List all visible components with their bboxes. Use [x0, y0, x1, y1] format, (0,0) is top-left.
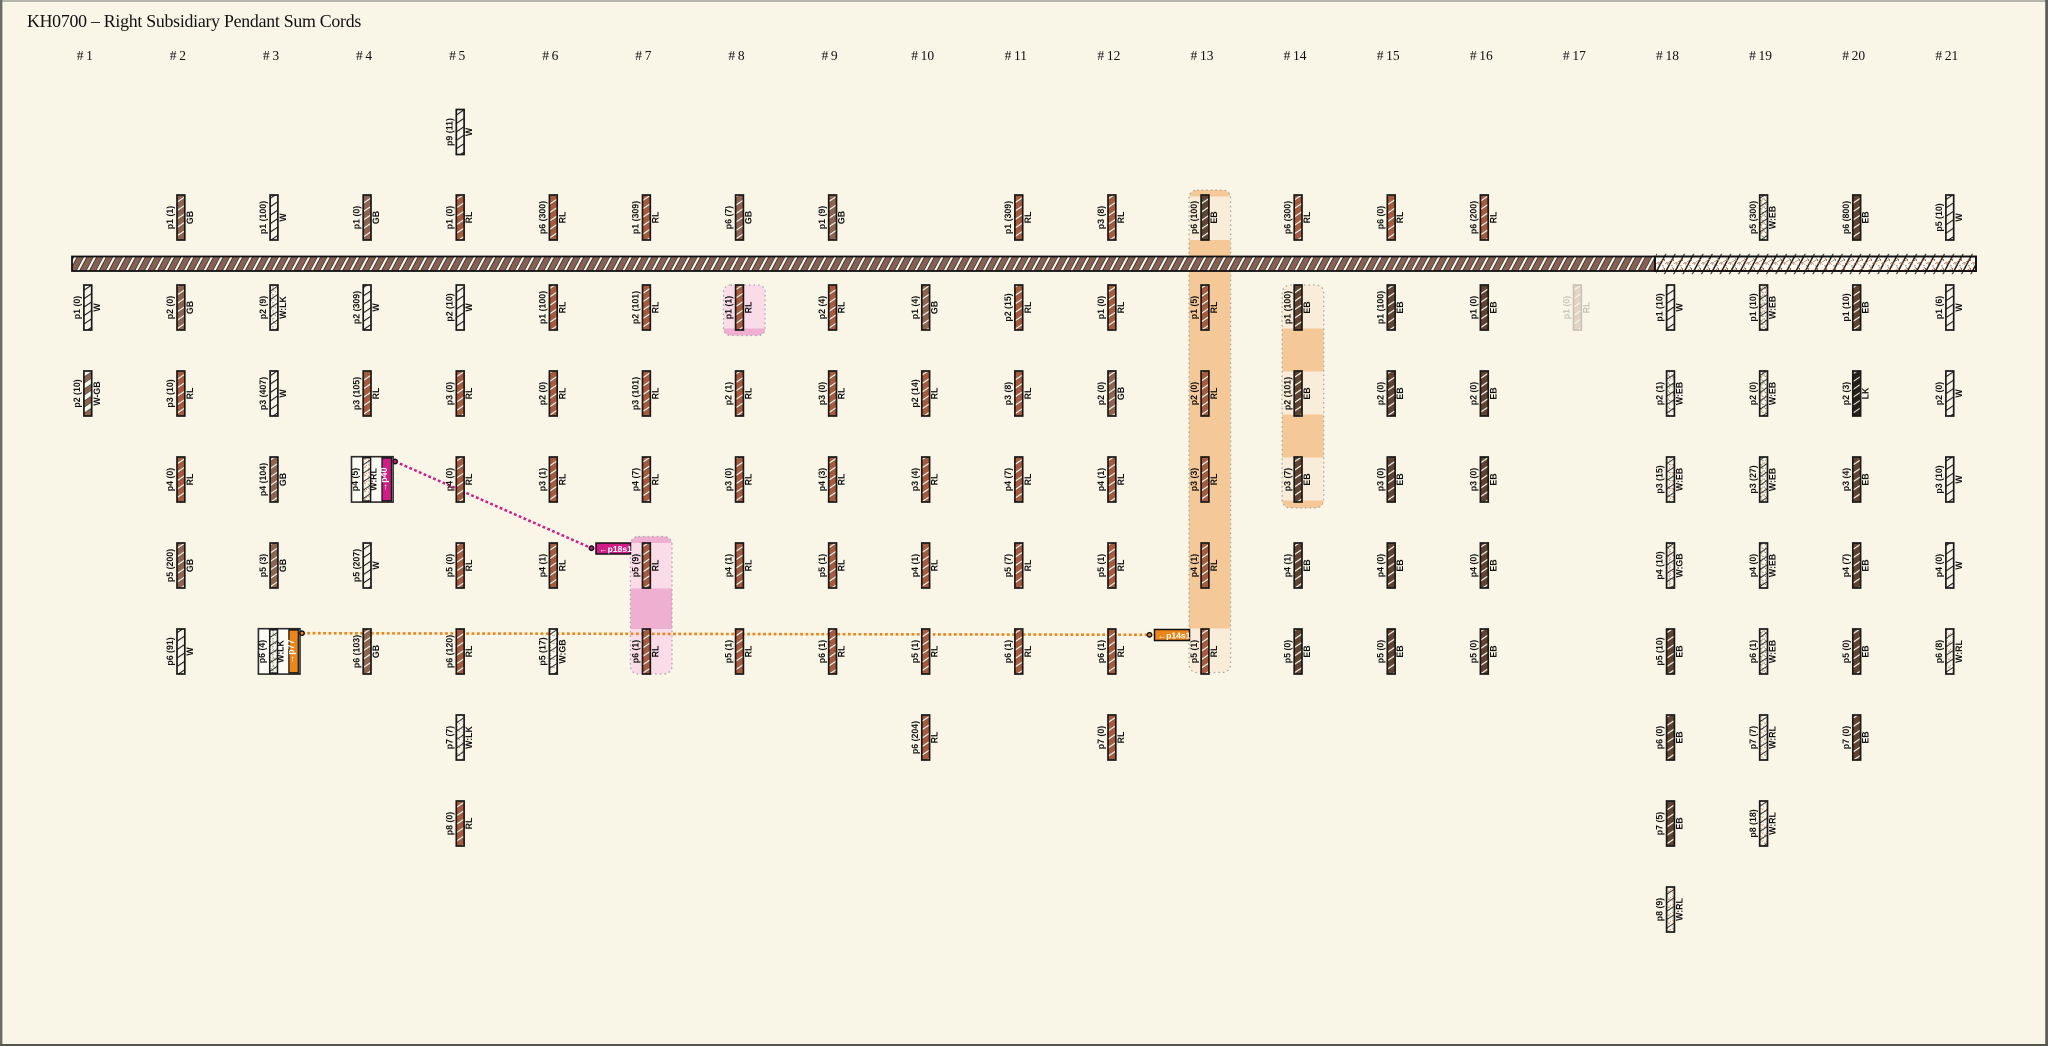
svg-text:p2 (0): p2 (0) — [165, 296, 175, 320]
svg-text:p6 (800): p6 (800) — [1841, 201, 1851, 234]
svg-text:p2 (1): p2 (1) — [1655, 382, 1665, 406]
svg-text:EB: EB — [1302, 387, 1312, 399]
svg-text:RL: RL — [557, 387, 567, 399]
svg-text:GB: GB — [837, 211, 847, 224]
svg-text:# 6: # 6 — [542, 48, 558, 63]
svg-text:p5 (1): p5 (1) — [724, 640, 734, 664]
svg-text:RL: RL — [744, 473, 754, 485]
svg-text:p6 (1): p6 (1) — [1748, 640, 1758, 664]
svg-text:p3 (105): p3 (105) — [351, 377, 361, 410]
svg-text:EB: EB — [1395, 473, 1405, 485]
svg-text:W:EB: W:EB — [1768, 382, 1778, 405]
svg-text:p6 (1): p6 (1) — [631, 640, 641, 664]
svg-text:RL: RL — [650, 559, 660, 571]
svg-text:RL: RL — [557, 559, 567, 571]
svg-text:GB: GB — [278, 473, 288, 486]
svg-text:p2 (10): p2 (10) — [444, 293, 454, 321]
svg-text:GB: GB — [371, 211, 381, 224]
svg-text:EB: EB — [1395, 301, 1405, 313]
svg-text:p4 (1): p4 (1) — [1282, 554, 1292, 578]
svg-text:p2 (0): p2 (0) — [1469, 382, 1479, 406]
svg-text:p1 (0): p1 (0) — [351, 206, 361, 230]
svg-text:p4 (0): p4 (0) — [444, 468, 454, 492]
svg-text:W: W — [278, 213, 288, 222]
svg-text:W: W — [371, 561, 381, 570]
svg-text:W: W — [464, 303, 474, 312]
svg-text:EB: EB — [1861, 559, 1871, 571]
svg-text:p2 (0): p2 (0) — [1096, 382, 1106, 406]
svg-text:p5 (3): p5 (3) — [258, 554, 268, 578]
svg-text:RL: RL — [650, 211, 660, 223]
svg-text:EB: EB — [1488, 559, 1498, 571]
svg-text:EB: EB — [1488, 473, 1498, 485]
svg-text:EB: EB — [1302, 559, 1312, 571]
svg-text:p3 (10): p3 (10) — [165, 379, 175, 407]
svg-text:p1 (4): p1 (4) — [910, 296, 920, 320]
svg-text:RL: RL — [930, 387, 940, 399]
svg-text:GB: GB — [744, 211, 754, 224]
svg-text:p4 (0): p4 (0) — [1748, 554, 1758, 578]
svg-text:# 11: # 11 — [1005, 48, 1027, 63]
svg-text:KH0700 – Right Subsidiary Pend: KH0700 – Right Subsidiary Pendant Sum Co… — [27, 11, 361, 31]
svg-text:p4 (1): p4 (1) — [1096, 468, 1106, 492]
svg-text:p1 (309): p1 (309) — [1003, 201, 1013, 234]
svg-text:p1 (1): p1 (1) — [724, 296, 734, 320]
svg-text:p4 (104): p4 (104) — [258, 463, 268, 496]
svg-text:p6 (0): p6 (0) — [1655, 726, 1665, 750]
svg-text:RL: RL — [744, 387, 754, 399]
svg-text:p6 (300): p6 (300) — [538, 201, 548, 234]
svg-text:←p14s1: ←p14s1 — [1158, 630, 1191, 640]
svg-text:p6 (1): p6 (1) — [1003, 640, 1013, 664]
svg-text:# 13: # 13 — [1191, 48, 1214, 63]
svg-text:RL: RL — [1023, 559, 1033, 571]
svg-text:RL: RL — [464, 387, 474, 399]
svg-text:p4 (7): p4 (7) — [1841, 554, 1851, 578]
svg-text:RL: RL — [1209, 387, 1219, 399]
svg-text:p4 (0): p4 (0) — [1375, 554, 1385, 578]
svg-text:p2 (15): p2 (15) — [1003, 293, 1013, 321]
svg-text:p7 (5): p7 (5) — [1655, 812, 1665, 836]
svg-text:p6 (204): p6 (204) — [910, 721, 920, 754]
svg-text:# 16: # 16 — [1470, 48, 1493, 63]
svg-text:RL: RL — [464, 817, 474, 829]
svg-text:p6 (300): p6 (300) — [1282, 201, 1292, 234]
svg-text:RL: RL — [1488, 211, 1498, 223]
svg-text:# 4: # 4 — [356, 48, 372, 63]
svg-text:p5 (17): p5 (17) — [538, 637, 548, 665]
svg-text:RL: RL — [837, 473, 847, 485]
svg-text:RL: RL — [1023, 301, 1033, 313]
svg-text:GB: GB — [185, 301, 195, 314]
svg-text:p5 (1): p5 (1) — [817, 554, 827, 578]
svg-text:p4 (1): p4 (1) — [910, 554, 920, 578]
svg-text:p2 (4): p2 (4) — [817, 296, 827, 320]
svg-text:p2 (10): p2 (10) — [72, 379, 82, 407]
svg-text:W: W — [185, 647, 195, 656]
svg-text:RL: RL — [1209, 559, 1219, 571]
svg-text:p1 (0): p1 (0) — [1469, 296, 1479, 320]
svg-text:p2 (101): p2 (101) — [1282, 377, 1292, 410]
svg-text:W:RL: W:RL — [1768, 811, 1778, 834]
svg-text:p3 (1): p3 (1) — [538, 468, 548, 492]
svg-text:p6 (4): p6 (4) — [257, 640, 267, 664]
svg-text:EB: EB — [1209, 211, 1219, 223]
svg-text:p2 (0): p2 (0) — [1934, 382, 1944, 406]
svg-text:p1 (0): p1 (0) — [1562, 296, 1572, 320]
svg-text:GB: GB — [930, 301, 940, 314]
svg-text:p6 (120): p6 (120) — [444, 635, 454, 668]
svg-text:W:RL: W:RL — [369, 467, 379, 490]
svg-text:RL: RL — [464, 645, 474, 657]
svg-text:p5 (0): p5 (0) — [1375, 640, 1385, 664]
svg-text:# 7: # 7 — [635, 48, 651, 63]
svg-text:p1 (0): p1 (0) — [444, 206, 454, 230]
svg-text:EB: EB — [1488, 645, 1498, 657]
svg-text:p9 (11): p9 (11) — [444, 118, 454, 146]
svg-text:RL: RL — [185, 387, 195, 399]
svg-text:# 10: # 10 — [911, 48, 934, 63]
svg-text:RL: RL — [371, 387, 381, 399]
svg-text:RL: RL — [1116, 731, 1126, 743]
svg-text:RL: RL — [557, 473, 567, 485]
svg-text:p2 (0): p2 (0) — [1375, 382, 1385, 406]
svg-text:EB: EB — [1861, 211, 1871, 223]
svg-text:p4 (7): p4 (7) — [631, 468, 641, 492]
svg-text:RL: RL — [557, 211, 567, 223]
svg-text:EB: EB — [1861, 473, 1871, 485]
svg-text:p3 (15): p3 (15) — [1655, 465, 1665, 493]
svg-text:RL: RL — [1116, 301, 1126, 313]
svg-text:p7 (0): p7 (0) — [1841, 726, 1851, 750]
svg-text:EB: EB — [1488, 301, 1498, 313]
svg-text:RL: RL — [1209, 473, 1219, 485]
svg-text:p1 (1): p1 (1) — [165, 206, 175, 230]
svg-text:p4 (0): p4 (0) — [165, 468, 175, 492]
svg-text:p4 (0): p4 (0) — [1934, 554, 1944, 578]
svg-text:W-GB: W-GB — [92, 381, 102, 405]
svg-text:RL: RL — [464, 211, 474, 223]
svg-text:p3 (101): p3 (101) — [631, 377, 641, 410]
svg-text:RL: RL — [185, 473, 195, 485]
svg-text:p3 (0): p3 (0) — [724, 468, 734, 492]
svg-text:p6 (7): p6 (7) — [724, 206, 734, 230]
svg-text:p2 (0): p2 (0) — [538, 382, 548, 406]
svg-text:p4 (1): p4 (1) — [1189, 554, 1199, 578]
svg-text:→p40: →p40 — [379, 467, 389, 491]
svg-text:p3 (3): p3 (3) — [1189, 468, 1199, 492]
svg-text:p7 (7): p7 (7) — [444, 726, 454, 750]
svg-text:p1 (100): p1 (100) — [538, 291, 548, 324]
svg-text:p7 (7): p7 (7) — [1748, 726, 1758, 750]
svg-text:# 18: # 18 — [1656, 48, 1679, 63]
svg-text:p5 (0): p5 (0) — [1841, 640, 1851, 664]
svg-text:W:EB: W:EB — [1768, 554, 1778, 577]
svg-text:RL: RL — [1116, 559, 1126, 571]
svg-text:RL: RL — [930, 473, 940, 485]
svg-text:RL: RL — [1116, 645, 1126, 657]
svg-text:p2 (309): p2 (309) — [351, 291, 361, 324]
svg-text:p3 (407): p3 (407) — [258, 377, 268, 410]
svg-text:GB: GB — [278, 559, 288, 572]
svg-text:p2 (3): p2 (3) — [1841, 382, 1851, 406]
svg-text:p5 (0): p5 (0) — [1469, 640, 1479, 664]
svg-text:p1 (100): p1 (100) — [1282, 291, 1292, 324]
svg-text:RL: RL — [744, 301, 754, 313]
svg-text:RL: RL — [930, 645, 940, 657]
svg-text:RL: RL — [650, 301, 660, 313]
svg-text:p5 (0): p5 (0) — [444, 554, 454, 578]
svg-text:W:GB: W:GB — [1675, 553, 1685, 577]
svg-text:p1 (10): p1 (10) — [1655, 293, 1665, 321]
svg-text:W:GB: W:GB — [557, 639, 567, 663]
svg-text:W:EB: W:EB — [1768, 296, 1778, 319]
svg-text:EB: EB — [1302, 473, 1312, 485]
svg-text:RL: RL — [557, 301, 567, 313]
svg-text:EB: EB — [1395, 387, 1405, 399]
svg-text:p2 (1): p2 (1) — [724, 382, 734, 406]
svg-text:p5 (200): p5 (200) — [165, 549, 175, 582]
svg-text:RL: RL — [930, 731, 940, 743]
svg-text:p1 (9): p1 (9) — [817, 206, 827, 230]
svg-text:RL: RL — [744, 645, 754, 657]
svg-text:p1 (10): p1 (10) — [1841, 293, 1851, 321]
svg-text:p2 (101): p2 (101) — [631, 291, 641, 324]
svg-text:p3 (4): p3 (4) — [1841, 468, 1851, 492]
svg-text:RL: RL — [837, 645, 847, 657]
svg-text:RL: RL — [1023, 473, 1033, 485]
svg-text:# 3: # 3 — [263, 48, 279, 63]
svg-text:p5 (10): p5 (10) — [1934, 203, 1944, 231]
svg-text:RL: RL — [1581, 301, 1591, 313]
svg-text:p5 (207): p5 (207) — [351, 549, 361, 582]
svg-text:W:LK: W:LK — [464, 725, 474, 748]
svg-text:# 5: # 5 — [449, 48, 465, 63]
svg-text:# 15: # 15 — [1377, 48, 1400, 63]
svg-text:p6 (200): p6 (200) — [1469, 201, 1479, 234]
svg-text:W:EB: W:EB — [1675, 382, 1685, 405]
svg-text:W:LK: W:LK — [276, 639, 286, 662]
svg-text:RL: RL — [1116, 211, 1126, 223]
svg-text:RL: RL — [837, 301, 847, 313]
svg-text:GB: GB — [371, 645, 381, 658]
svg-text:EB: EB — [1861, 301, 1871, 313]
svg-text:RL: RL — [837, 387, 847, 399]
svg-text:GB: GB — [1116, 387, 1126, 400]
svg-text:p5 (9): p5 (9) — [631, 554, 641, 578]
svg-text:W: W — [1954, 303, 1964, 312]
svg-text:p3 (0): p3 (0) — [1375, 468, 1385, 492]
svg-text:p1 (0): p1 (0) — [1096, 296, 1106, 320]
svg-text:# 14: # 14 — [1284, 48, 1307, 63]
svg-text:W: W — [1954, 389, 1964, 398]
svg-text:→p77: →p77 — [286, 639, 296, 663]
svg-text:W:LK: W:LK — [278, 295, 288, 318]
svg-text:p2 (9): p2 (9) — [258, 296, 268, 320]
svg-text:# 20: # 20 — [1842, 48, 1865, 63]
svg-text:RL: RL — [1209, 301, 1219, 313]
svg-text:EB: EB — [1675, 731, 1685, 743]
svg-text:p6 (103): p6 (103) — [351, 635, 361, 668]
svg-text:p5 (1): p5 (1) — [910, 640, 920, 664]
svg-text:p3 (0): p3 (0) — [817, 382, 827, 406]
svg-text:W:EB: W:EB — [1675, 468, 1685, 491]
svg-text:RL: RL — [1302, 211, 1312, 223]
svg-text:RL: RL — [1116, 473, 1126, 485]
svg-text:W:EB: W:EB — [1768, 206, 1778, 229]
svg-text:# 17: # 17 — [1563, 48, 1586, 63]
svg-text:W:EB: W:EB — [1768, 640, 1778, 663]
svg-text:EB: EB — [1861, 731, 1871, 743]
svg-text:EB: EB — [1675, 817, 1685, 829]
svg-text:RL: RL — [1023, 211, 1033, 223]
svg-text:p8 (0): p8 (0) — [444, 812, 454, 836]
svg-text:# 21: # 21 — [1935, 48, 1958, 63]
svg-text:W:RL: W:RL — [1675, 897, 1685, 920]
svg-text:p8 (18): p8 (18) — [1748, 809, 1758, 837]
svg-text:RL: RL — [930, 559, 940, 571]
svg-text:W: W — [1954, 213, 1964, 222]
svg-text:p1 (100): p1 (100) — [1375, 291, 1385, 324]
svg-text:# 8: # 8 — [728, 48, 744, 63]
svg-text:RL: RL — [837, 559, 847, 571]
svg-text:# 2: # 2 — [170, 48, 186, 63]
svg-text:W: W — [278, 389, 288, 398]
svg-text:W: W — [1954, 561, 1964, 570]
svg-text:RL: RL — [1209, 645, 1219, 657]
svg-text:p3 (4): p3 (4) — [910, 468, 920, 492]
svg-text:p1 (6): p1 (6) — [1934, 296, 1944, 320]
svg-text:# 19: # 19 — [1749, 48, 1772, 63]
svg-text:p4 (7): p4 (7) — [1003, 468, 1013, 492]
svg-text:EB: EB — [1395, 645, 1405, 657]
svg-text:RL: RL — [464, 473, 474, 485]
svg-text:p1 (10): p1 (10) — [1748, 293, 1758, 321]
svg-text:RL: RL — [650, 645, 660, 657]
svg-text:p5 (300): p5 (300) — [1748, 201, 1758, 234]
svg-text:p4 (1): p4 (1) — [538, 554, 548, 578]
svg-text:p1 (0): p1 (0) — [72, 296, 82, 320]
svg-text:p5 (1): p5 (1) — [1189, 640, 1199, 664]
svg-text:←p18s1: ←p18s1 — [599, 544, 632, 554]
svg-text:p2 (0): p2 (0) — [1748, 382, 1758, 406]
svg-text:p7 (0): p7 (0) — [1096, 726, 1106, 750]
svg-text:p3 (8): p3 (8) — [1096, 206, 1106, 230]
svg-text:p1 (309): p1 (309) — [631, 201, 641, 234]
svg-text:p4 (5): p4 (5) — [350, 468, 360, 492]
svg-text:W: W — [92, 303, 102, 312]
svg-text:p6 (100): p6 (100) — [1189, 201, 1199, 234]
svg-text:p4 (1): p4 (1) — [724, 554, 734, 578]
svg-text:EB: EB — [1488, 387, 1498, 399]
svg-text:p8 (9): p8 (9) — [1655, 898, 1665, 922]
svg-text:p4 (3): p4 (3) — [817, 468, 827, 492]
svg-text:EB: EB — [1395, 559, 1405, 571]
svg-text:EB: EB — [1302, 301, 1312, 313]
svg-text:W:RL: W:RL — [1768, 725, 1778, 748]
svg-text:RL: RL — [650, 473, 660, 485]
svg-text:W: W — [1675, 303, 1685, 312]
svg-text:p2 (0): p2 (0) — [1189, 382, 1199, 406]
svg-text:p4 (0): p4 (0) — [1469, 554, 1479, 578]
svg-text:W: W — [464, 127, 474, 136]
svg-text:LK: LK — [1861, 387, 1871, 399]
svg-text:p5 (1): p5 (1) — [1096, 554, 1106, 578]
svg-text:# 1: # 1 — [77, 48, 93, 63]
svg-text:p6 (91): p6 (91) — [165, 637, 175, 665]
svg-text:p3 (10): p3 (10) — [1934, 465, 1944, 493]
svg-text:# 9: # 9 — [821, 48, 837, 63]
svg-text:p6 (1): p6 (1) — [817, 640, 827, 664]
svg-text:p3 (7): p3 (7) — [1282, 468, 1292, 492]
svg-text:p5 (0): p5 (0) — [1282, 640, 1292, 664]
svg-text:p1 (5): p1 (5) — [1189, 296, 1199, 320]
svg-text:EB: EB — [1675, 645, 1685, 657]
svg-text:p2 (14): p2 (14) — [910, 379, 920, 407]
svg-text:p5 (10): p5 (10) — [1655, 637, 1665, 665]
svg-text:W: W — [371, 303, 381, 312]
svg-text:p6 (1): p6 (1) — [1096, 640, 1106, 664]
svg-text:W: W — [1954, 475, 1964, 484]
svg-text:p3 (0): p3 (0) — [1469, 468, 1479, 492]
svg-text:p5 (7): p5 (7) — [1003, 554, 1013, 578]
svg-text:p3 (27): p3 (27) — [1748, 465, 1758, 493]
svg-text:RL: RL — [1023, 387, 1033, 399]
svg-text:RL: RL — [464, 559, 474, 571]
svg-text:p4 (10): p4 (10) — [1655, 551, 1665, 579]
svg-text:RL: RL — [1023, 645, 1033, 657]
svg-text:EB: EB — [1302, 645, 1312, 657]
svg-text:p3 (8): p3 (8) — [1003, 382, 1013, 406]
svg-text:W:RL: W:RL — [1954, 639, 1964, 662]
svg-text:p3 (0): p3 (0) — [444, 382, 454, 406]
svg-text:W:EB: W:EB — [1768, 468, 1778, 491]
svg-text:RL: RL — [1395, 211, 1405, 223]
svg-text:# 12: # 12 — [1097, 48, 1120, 63]
svg-text:EB: EB — [1861, 645, 1871, 657]
svg-text:p6 (0): p6 (0) — [1375, 206, 1385, 230]
svg-text:GB: GB — [185, 211, 195, 224]
svg-text:p6 (8): p6 (8) — [1934, 640, 1944, 664]
svg-text:GB: GB — [185, 559, 195, 572]
svg-text:p1 (100): p1 (100) — [258, 201, 268, 234]
svg-text:RL: RL — [744, 559, 754, 571]
svg-text:RL: RL — [650, 387, 660, 399]
